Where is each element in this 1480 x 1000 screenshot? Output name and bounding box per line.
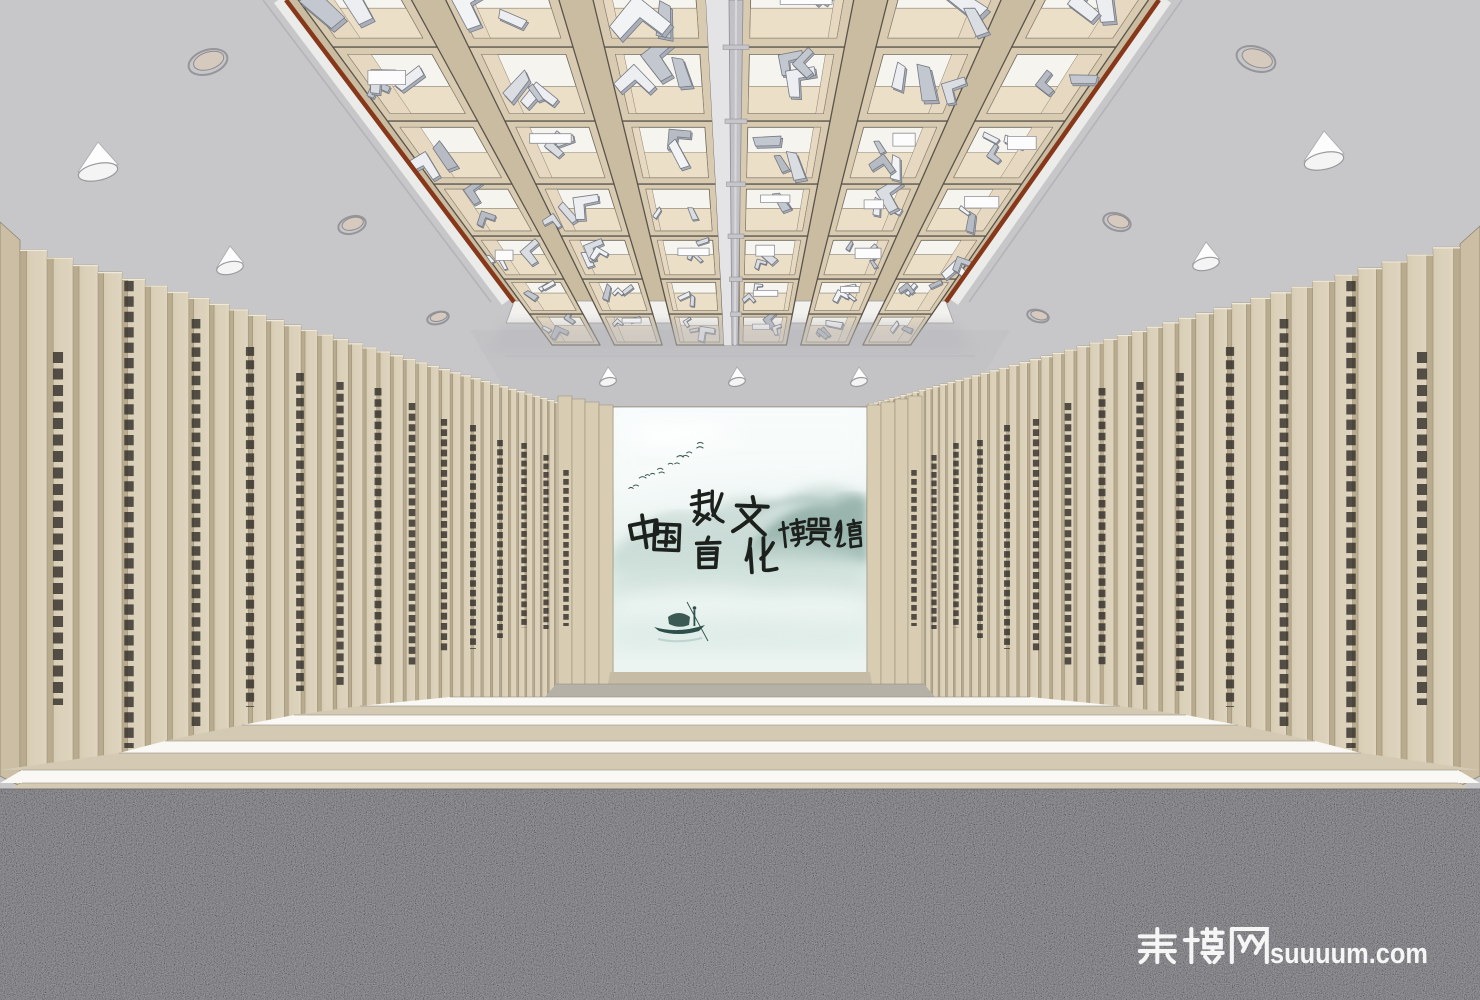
svg-text:suuuum.com: suuuum.com: [1270, 938, 1428, 970]
